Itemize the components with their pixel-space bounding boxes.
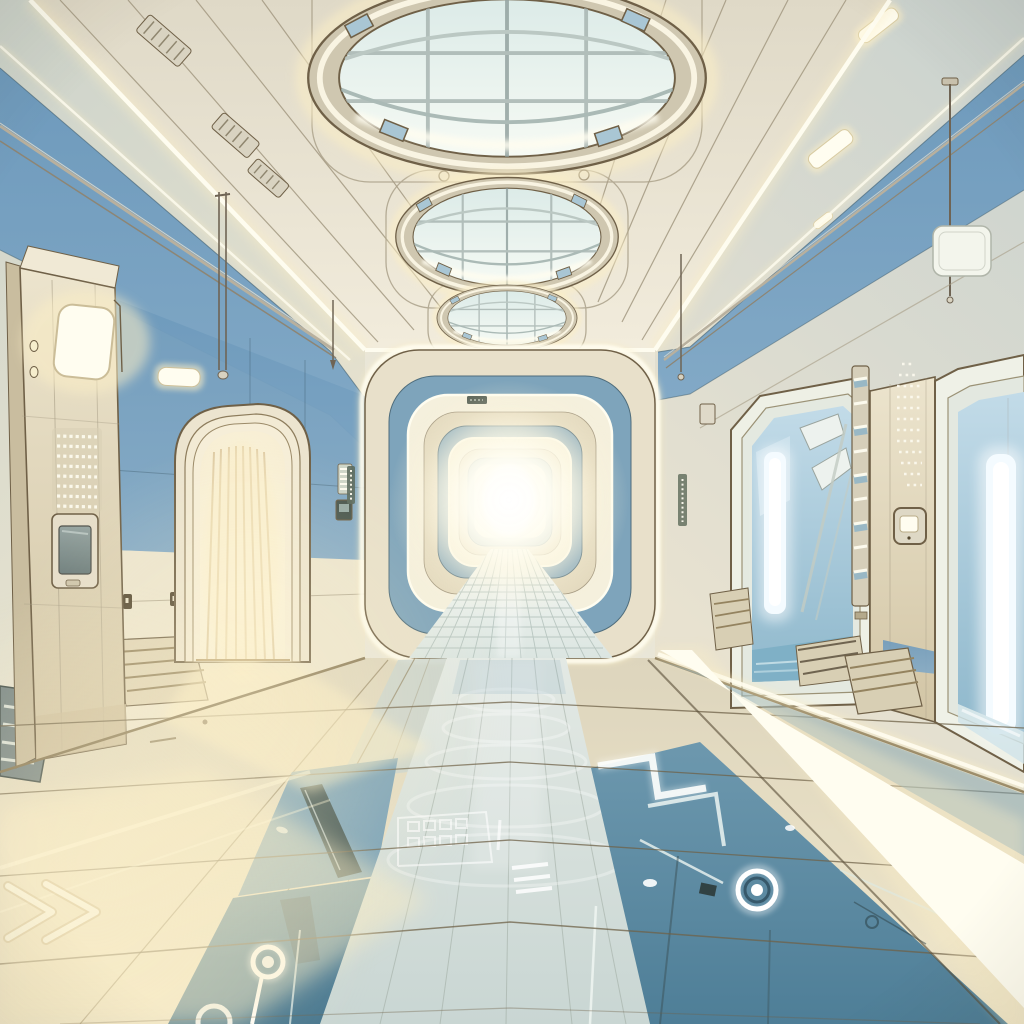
scifi-corridor-illustration (0, 0, 1024, 1024)
atmosphere (0, 0, 1024, 1024)
